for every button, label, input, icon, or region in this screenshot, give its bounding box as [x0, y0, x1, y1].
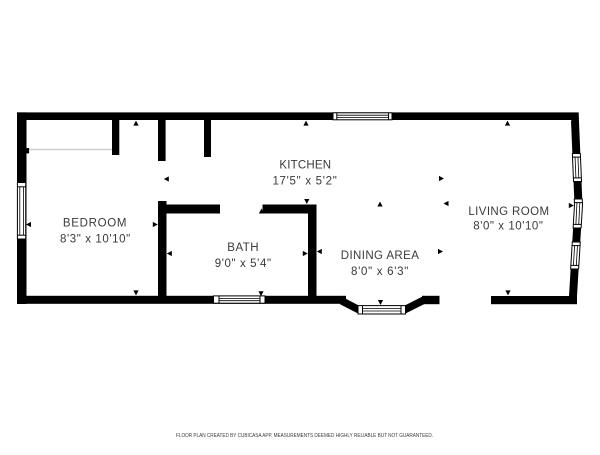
- svg-text:8'0" x 10'10": 8'0" x 10'10": [473, 221, 543, 233]
- svg-text:BATH: BATH: [227, 242, 259, 254]
- svg-text:LIVING ROOM: LIVING ROOM: [468, 206, 549, 218]
- svg-text:8'3" x 10'10": 8'3" x 10'10": [60, 233, 131, 245]
- svg-text:FLOOR PLAN CREATED BY CUBICASA: FLOOR PLAN CREATED BY CUBICASA APP. MEAS…: [176, 433, 433, 439]
- svg-text:KITCHEN: KITCHEN: [279, 160, 331, 172]
- svg-text:17'5" x 5'2": 17'5" x 5'2": [272, 176, 337, 188]
- svg-text:9'0" x 5'4": 9'0" x 5'4": [215, 258, 272, 270]
- svg-text:DINING AREA: DINING AREA: [341, 250, 420, 262]
- svg-text:8'0" x 6'3": 8'0" x 6'3": [351, 266, 409, 278]
- svg-text:BEDROOM: BEDROOM: [63, 217, 127, 229]
